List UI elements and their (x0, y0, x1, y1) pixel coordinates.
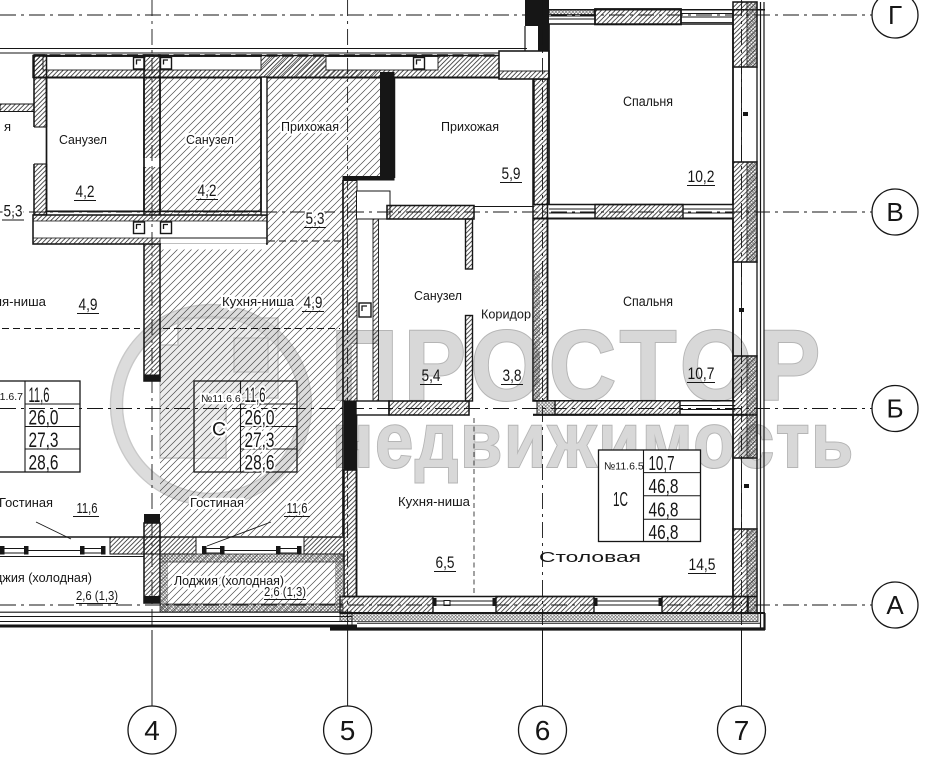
svg-text:11,6: 11,6 (29, 384, 50, 407)
svg-text:5,9: 5,9 (502, 164, 521, 183)
svg-text:Санузел: Санузел (186, 132, 234, 147)
svg-text:4,2: 4,2 (76, 182, 95, 201)
svg-text:Г: Г (888, 0, 902, 30)
svg-text:46,8: 46,8 (649, 522, 679, 544)
svg-text:Гостиная: Гостиная (190, 495, 244, 510)
svg-text:26,0: 26,0 (29, 407, 59, 430)
svg-text:Гостиная: Гостиная (0, 495, 53, 510)
svg-text:4: 4 (144, 715, 160, 746)
svg-text:Кухня-ниша: Кухня-ниша (0, 294, 47, 309)
svg-text:Коридор: Коридор (481, 307, 531, 322)
svg-text:27,3: 27,3 (29, 429, 59, 452)
svg-text:4,2: 4,2 (198, 181, 217, 200)
svg-text:№11.6.6: №11.6.6 (201, 393, 241, 405)
svg-text:10,7: 10,7 (649, 453, 675, 475)
svg-text:26,0: 26,0 (245, 407, 275, 430)
svg-text:6: 6 (535, 715, 551, 746)
svg-text:6,5: 6,5 (436, 553, 455, 572)
svg-text:3,8: 3,8 (503, 366, 522, 385)
svg-text:5,3: 5,3 (4, 202, 23, 221)
svg-text:27,3: 27,3 (245, 429, 275, 452)
svg-text:Санузел: Санузел (59, 132, 107, 147)
svg-text:28,6: 28,6 (29, 452, 59, 475)
svg-text:11,6: 11,6 (77, 500, 98, 517)
svg-text:Б: Б (886, 394, 903, 424)
svg-text:10,7: 10,7 (688, 364, 715, 383)
svg-text:Лоджия (холодная): Лоджия (холодная) (0, 570, 92, 585)
svg-text:1С: 1С (613, 489, 628, 511)
svg-text:4,9: 4,9 (304, 293, 323, 312)
svg-text:Кухня-ниша: Кухня-ниша (222, 294, 295, 309)
svg-text:10,2: 10,2 (688, 167, 715, 186)
svg-text:Прихожая: Прихожая (281, 119, 339, 134)
svg-text:5,3: 5,3 (306, 209, 325, 228)
svg-text:Столовая: Столовая (539, 550, 641, 566)
svg-text:Прихожая: Прихожая (441, 119, 499, 134)
svg-text:28,6: 28,6 (245, 452, 275, 475)
svg-text:я: я (4, 119, 11, 134)
svg-text:В: В (886, 197, 903, 227)
svg-text:14,5: 14,5 (689, 555, 716, 574)
svg-text:11,6: 11,6 (287, 500, 308, 517)
svg-text:№11.6.7: №11.6.7 (0, 391, 23, 403)
svg-text:Спальня: Спальня (623, 94, 673, 109)
svg-text:5: 5 (340, 715, 356, 746)
svg-text:Кухня-ниша: Кухня-ниша (398, 494, 471, 509)
svg-text:С: С (212, 419, 226, 441)
svg-text:№11.6.5: №11.6.5 (604, 461, 644, 473)
svg-text:А: А (886, 590, 904, 620)
svg-text:Спальня: Спальня (623, 294, 673, 309)
svg-text:5,4: 5,4 (422, 366, 441, 385)
svg-text:7: 7 (734, 715, 750, 746)
svg-text:Санузел: Санузел (414, 288, 462, 303)
svg-text:2,6 (1,3): 2,6 (1,3) (264, 584, 306, 599)
svg-text:11,6: 11,6 (245, 384, 266, 407)
svg-text:46,8: 46,8 (649, 476, 679, 498)
svg-text:4,9: 4,9 (79, 295, 98, 314)
svg-text:46,8: 46,8 (649, 500, 679, 522)
svg-text:2,6 (1,3): 2,6 (1,3) (76, 588, 118, 603)
